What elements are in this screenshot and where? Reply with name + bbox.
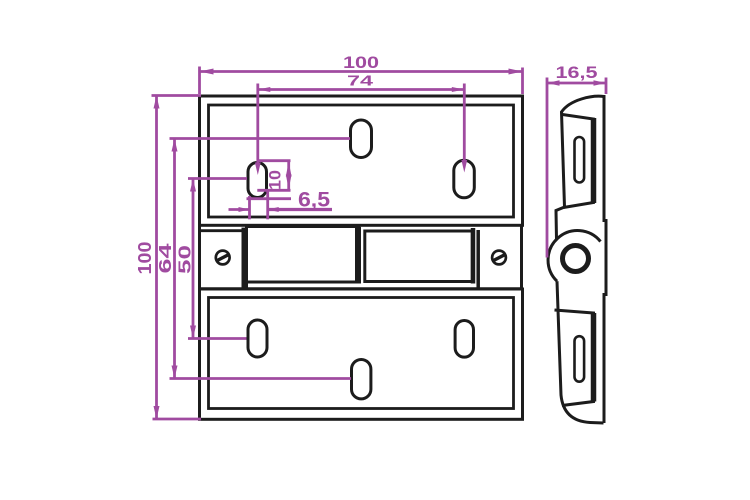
svg-text:100: 100	[135, 242, 155, 275]
svg-text:100: 100	[343, 54, 379, 72]
svg-text:10: 10	[267, 170, 285, 190]
svg-text:16,5: 16,5	[556, 64, 598, 82]
svg-text:64: 64	[155, 243, 175, 273]
svg-text:50: 50	[175, 245, 195, 274]
svg-text:74: 74	[347, 73, 374, 90]
svg-text:6,5: 6,5	[298, 188, 330, 212]
